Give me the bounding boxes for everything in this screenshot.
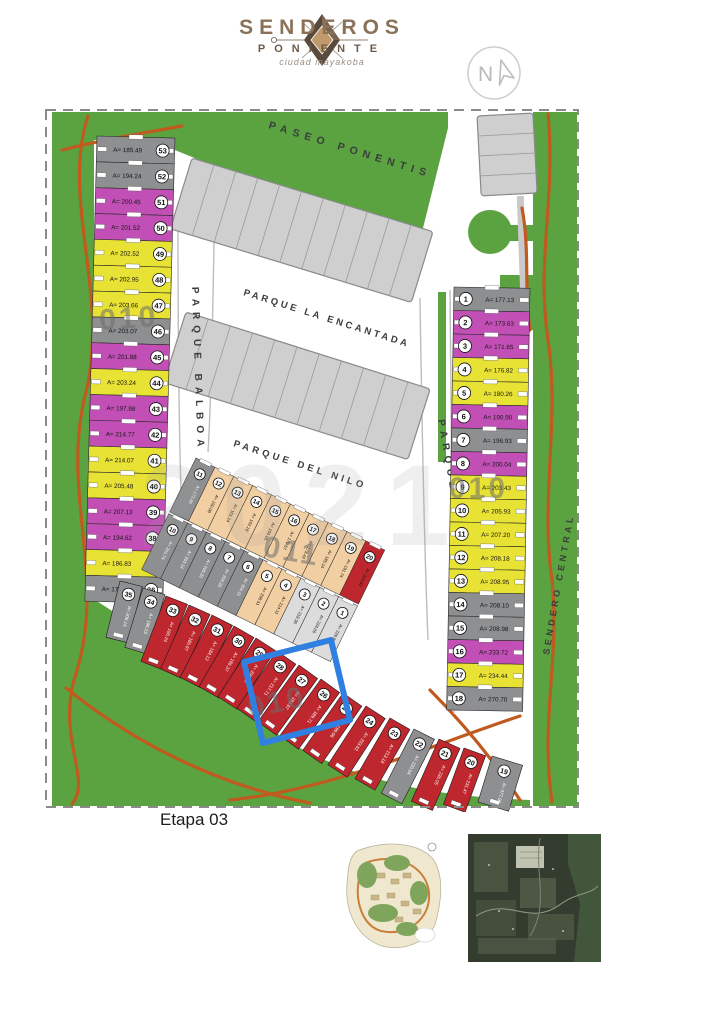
svg-text:A= 197.98: A= 197.98 [106,405,136,413]
svg-text:A= 194.24: A= 194.24 [112,173,142,181]
thumbnail-north-icon [428,843,436,851]
svg-text:6: 6 [462,412,466,421]
svg-text:A= 270.70: A= 270.70 [478,696,508,704]
svg-text:A= 194.62: A= 194.62 [103,534,133,542]
lot-16: A= 233.7216 [447,637,523,664]
svg-text:16: 16 [455,647,463,656]
svg-text:42: 42 [151,430,160,439]
svg-text:52: 52 [158,172,167,181]
svg-text:A= 208.98: A= 208.98 [480,626,510,634]
lot-4: A= 176.824 [452,355,528,382]
svg-text:13: 13 [457,577,465,586]
svg-text:A= 207.20: A= 207.20 [481,532,511,540]
lot-50: A= 201.5250 [94,211,173,241]
svg-text:A= 203.24: A= 203.24 [107,379,137,387]
svg-text:A= 214.77: A= 214.77 [106,431,136,439]
svg-text:A= 201.52: A= 201.52 [111,224,141,232]
svg-text:A= 207.13: A= 207.13 [104,509,134,517]
lot-1: A= 177.131 [454,285,530,312]
svg-text:A= 200.04: A= 200.04 [482,461,512,469]
svg-text:A= 190.90: A= 190.90 [483,414,513,422]
svg-text:48: 48 [155,275,164,284]
svg-text:A= 214.07: A= 214.07 [105,457,135,465]
svg-text:43: 43 [152,405,161,414]
lot-45: A= 201.8845 [91,341,170,371]
svg-text:A= 201.88: A= 201.88 [108,353,138,361]
lot-48: A= 202.9548 [93,263,172,293]
svg-text:A= 177.13: A= 177.13 [485,297,515,305]
block-label-left: 010 [98,300,159,337]
lot-6: A= 190.906 [452,402,528,429]
svg-text:18: 18 [455,694,463,703]
svg-text:A= 185.49: A= 185.49 [113,147,143,155]
svg-text:A= 202.95: A= 202.95 [110,276,140,284]
page: SENDEROS PONIENTE ciudad mayakoba N [0,0,724,1024]
svg-text:A= 202.52: A= 202.52 [110,250,140,258]
svg-text:A= 208.10: A= 208.10 [480,602,510,610]
lot-2: A= 173.632 [453,308,529,335]
satellite-thumbnail [468,834,601,962]
svg-text:14: 14 [456,600,465,609]
svg-text:17: 17 [455,671,463,680]
lot-43: A= 197.9843 [90,392,169,422]
svg-text:A= 208.18: A= 208.18 [481,555,511,563]
svg-text:A= 171.65: A= 171.65 [484,344,514,352]
svg-text:1: 1 [464,295,468,304]
lot-15: A= 208.9815 [448,614,524,641]
svg-text:2: 2 [463,318,467,327]
lot-5: A= 180.265 [452,379,528,406]
svg-text:A= 173.63: A= 173.63 [485,320,515,328]
svg-text:A= 205.48: A= 205.48 [104,483,134,491]
lot-52: A= 194.2452 [96,160,175,190]
lot-17: A= 234.4417 [447,661,523,688]
stage-label: Etapa 03 [160,810,228,830]
lot-53: A= 185.4953 [96,134,175,164]
lot-14: A= 208.1014 [448,590,524,617]
svg-text:A= 205.93: A= 205.93 [482,508,512,516]
svg-text:45: 45 [153,353,162,362]
site-map: PASEO PONENTIS PARQUE LA ENCANTADA PARQU… [0,0,724,812]
svg-text:3: 3 [463,342,467,351]
svg-text:50: 50 [156,224,165,233]
svg-text:44: 44 [152,379,161,388]
svg-text:A= 234.44: A= 234.44 [479,673,509,681]
watermark: 2021 [140,442,468,570]
svg-text:5: 5 [462,389,466,398]
lot-13: A= 208.9513 [449,567,525,594]
svg-text:51: 51 [157,198,166,207]
lot-18: A= 270.7018 [447,684,523,711]
lot-49: A= 202.5249 [94,237,173,267]
masterplan-thumbnail [337,833,453,959]
unplotted-block [477,113,537,196]
svg-text:A= 180.26: A= 180.26 [484,391,514,399]
lot-3: A= 171.653 [453,332,529,359]
svg-text:A= 186.83: A= 186.83 [102,560,132,568]
svg-text:A= 196.93: A= 196.93 [483,438,513,446]
svg-text:A= 200.45: A= 200.45 [112,198,142,206]
lot-44: A= 203.2444 [90,366,169,396]
svg-text:53: 53 [158,146,167,155]
svg-text:A= 208.95: A= 208.95 [480,579,510,587]
svg-text:A= 233.72: A= 233.72 [479,649,509,657]
lot-51: A= 200.4551 [95,185,174,215]
svg-text:15: 15 [456,624,464,633]
svg-text:A= 176.82: A= 176.82 [484,367,514,375]
svg-text:49: 49 [156,250,165,259]
